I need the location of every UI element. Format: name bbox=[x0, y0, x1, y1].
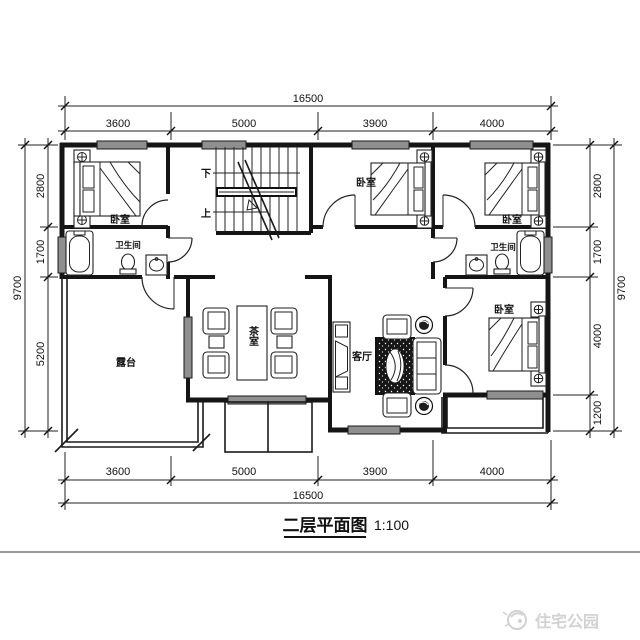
dim-bottom-total: 16500 bbox=[293, 490, 324, 502]
staircase: 下 上 bbox=[201, 147, 300, 240]
room-bedroom-top-left: 卧室 bbox=[74, 150, 140, 228]
bathroom-left-label: 卫生间 bbox=[115, 240, 141, 250]
room-bathroom-right: 卫生间 bbox=[466, 231, 544, 275]
dim-top-seg4: 4000 bbox=[480, 118, 504, 130]
dim-right-seg3: 4000 bbox=[592, 324, 604, 348]
floor-plan-page: 16500 3600 5000 3900 4000 3600 5000 3900… bbox=[0, 0, 640, 640]
drawing-title: 二层平面图 1:100 bbox=[283, 516, 410, 537]
dim-left-seg3: 5200 bbox=[35, 342, 47, 366]
dim-top-total: 16500 bbox=[293, 93, 324, 105]
watermark: 住宅公园 bbox=[503, 611, 599, 631]
dim-bottom-seg1: 3600 bbox=[106, 466, 130, 478]
bedroom-top-left-label: 卧室 bbox=[110, 213, 130, 226]
dim-right-seg4: 1200 bbox=[592, 401, 604, 425]
room-bedroom-top-mid: 卧室 bbox=[356, 150, 432, 228]
dim-left-total: 9700 bbox=[12, 276, 24, 300]
balcony bbox=[442, 397, 548, 433]
drawing-title-text: 二层平面图 bbox=[283, 516, 368, 535]
dim-right-total: 9700 bbox=[616, 276, 628, 300]
dim-bottom-seg4: 4000 bbox=[480, 466, 504, 478]
floor-plan-svg: 16500 3600 5000 3900 4000 3600 5000 3900… bbox=[0, 0, 640, 640]
bathroom-right-label: 卫生间 bbox=[490, 242, 516, 252]
dimension-top: 16500 3600 5000 3900 4000 bbox=[58, 93, 558, 140]
porch-roof bbox=[225, 402, 312, 452]
living-room-label: 客厅 bbox=[351, 350, 372, 363]
bedroom-top-mid-label: 卧室 bbox=[356, 176, 376, 189]
dim-top-seg3: 3900 bbox=[363, 118, 387, 130]
stairs-up-label: 上 bbox=[201, 207, 211, 220]
terrace-label: 露台 bbox=[116, 356, 136, 369]
watermark-brand-text: 住宅公园 bbox=[535, 612, 599, 631]
dimension-bottom: 3600 5000 3900 4000 16500 bbox=[58, 440, 558, 510]
room-bedroom-bottom-right: 卧室 bbox=[489, 302, 546, 386]
dim-bottom-seg3: 3900 bbox=[363, 466, 387, 478]
dim-right-seg2: 1700 bbox=[592, 240, 604, 264]
room-bedroom-top-right: 卧室 bbox=[485, 150, 546, 228]
dim-bottom-seg2: 5000 bbox=[232, 466, 256, 478]
room-bathroom-left: 卫生间 bbox=[66, 231, 167, 275]
dim-left-seg1: 2800 bbox=[35, 174, 47, 198]
dim-top-seg1: 3600 bbox=[106, 118, 130, 130]
dim-right-seg1: 2800 bbox=[592, 174, 604, 198]
dim-top-seg2: 5000 bbox=[232, 118, 256, 130]
drawing-scale-text: 1:100 bbox=[374, 517, 409, 533]
stairs-down-label: 下 bbox=[201, 168, 211, 180]
watermark-logo-icon bbox=[503, 611, 526, 629]
dim-left-seg2: 1700 bbox=[35, 240, 47, 264]
bedroom-bottom-right-label: 卧室 bbox=[494, 303, 514, 316]
room-tea: 茶室 bbox=[203, 306, 297, 380]
room-living: 客厅 bbox=[333, 315, 441, 417]
dimension-right: 2800 1700 4000 1200 9700 bbox=[553, 138, 628, 438]
bedroom-top-right-label: 卧室 bbox=[502, 213, 522, 226]
dimension-left: 2800 1700 5200 9700 bbox=[12, 138, 58, 438]
